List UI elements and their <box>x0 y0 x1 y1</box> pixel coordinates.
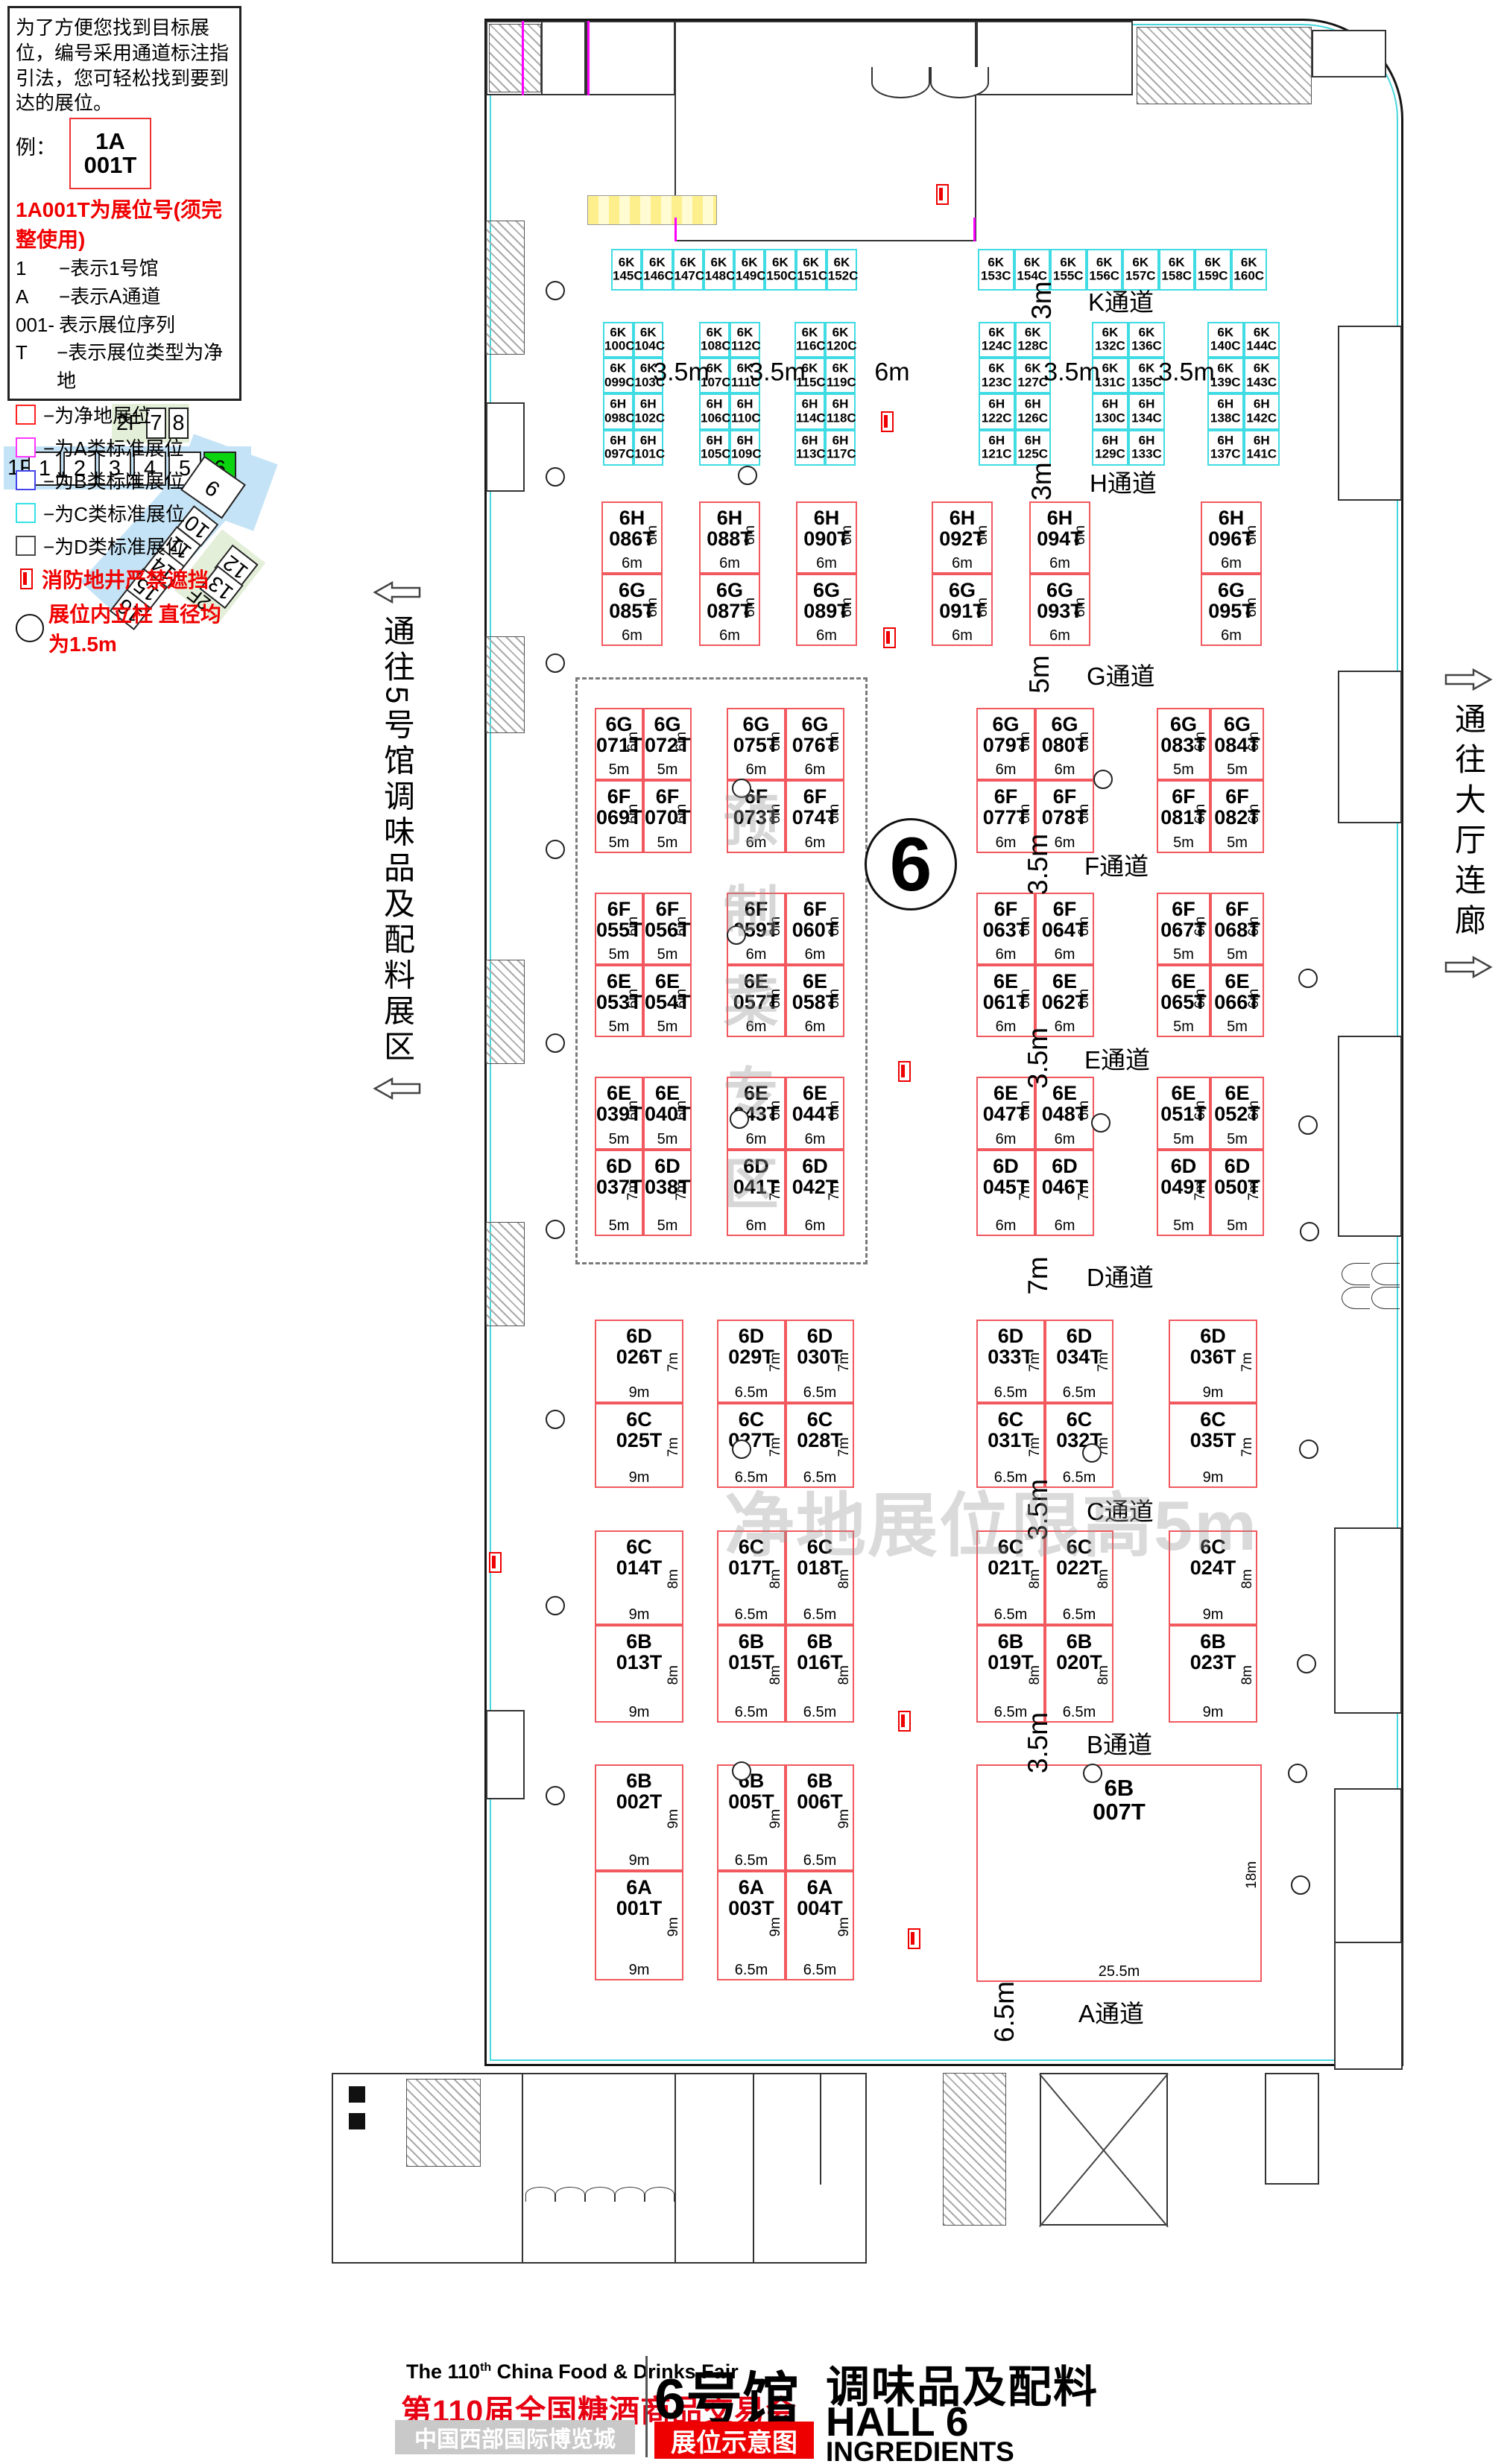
booth-6D033T: 6D033T6.5m7m <box>976 1320 1045 1403</box>
structure-wall <box>1338 326 1402 501</box>
booth-6G080T: 6G080T6m6m <box>1035 708 1094 780</box>
legend-rule: 1−表示1号馆 <box>16 255 233 283</box>
booth-code: 6K147C <box>674 256 702 284</box>
booth-width-label: 6m <box>603 555 661 572</box>
booth-width-label: 6m <box>787 1131 843 1148</box>
booth-width-label: 6.5m <box>718 1962 784 1979</box>
booth-6F070T: 6F070T5m6m <box>643 780 692 853</box>
booth-width-label: 6m <box>1037 1131 1093 1148</box>
arrow-shape <box>1446 957 1491 977</box>
booth-width-label: 6m <box>978 1217 1034 1235</box>
booth-width-label: 6m <box>1202 555 1260 572</box>
booth-width-label: 6m <box>978 946 1034 963</box>
booth-6F064T: 6F064T6m6m <box>1035 893 1094 965</box>
venue-bar: 中国西部国际博览城 <box>395 2420 635 2454</box>
booth-height-label: 7m <box>1027 1352 1043 1372</box>
booth-code: 6K136C <box>1130 326 1163 354</box>
decor: 118C <box>827 411 854 425</box>
decor: 6D <box>1170 1326 1256 1347</box>
booth-width-label: 6.5m <box>1046 1384 1112 1402</box>
decor: 151C <box>797 270 825 283</box>
booth-6G075T: 6G075T6m6m <box>727 708 786 780</box>
booth-6F074T: 6F074T6m6m <box>786 780 844 853</box>
booth-height-label: 7m <box>827 1181 843 1200</box>
booth-6G076T: 6G076T6m6m <box>786 708 844 780</box>
booth-width-label: 6m <box>787 1217 843 1235</box>
structure-arcup <box>525 2187 555 2202</box>
pillar <box>738 466 757 485</box>
structure-hatch <box>1137 27 1312 104</box>
booth-6A004T: 6A004T6.5m9m <box>786 1871 854 1980</box>
structure-wall <box>1334 1788 1402 1948</box>
booth-code: 6K116C <box>796 326 824 354</box>
legend-intro: 为了方便您找到目标展位，编号采用通道标注指引法，您可轻松找到要到达的展位。 <box>16 16 233 116</box>
booth-code: 6A001T <box>596 1878 682 1919</box>
booth-height-label: 7m <box>1239 1352 1256 1372</box>
decor: 158C <box>1160 270 1194 283</box>
booth-6H130C: 6H130C <box>1092 393 1128 429</box>
booth-code: 6H109C <box>731 434 759 461</box>
booth-height-label: 8m <box>1096 1665 1112 1685</box>
booth-type-swatch <box>16 470 36 490</box>
booth-6H110C: 6H110C <box>730 393 760 429</box>
decor: 007T <box>978 1800 1260 1824</box>
booth-code: 6H122C <box>980 398 1014 425</box>
decor: 6C <box>718 1410 784 1431</box>
booth-height-label: 7m <box>1017 1181 1034 1200</box>
aisle-width-label: 3m <box>1026 462 1058 500</box>
booth-width-label: 9m <box>596 1704 682 1721</box>
booth-code: 6K108C <box>701 326 728 354</box>
booth-6H126C: 6H126C <box>1015 393 1052 429</box>
booth-6H086T: 6H086T6m6m <box>601 501 663 574</box>
booth-width-label: 5m <box>596 1131 642 1148</box>
decor: 156C <box>1088 270 1122 283</box>
booth-code: 6H126C <box>1017 398 1050 425</box>
booth-6C025T: 6C025T9m7m <box>595 1403 683 1488</box>
decor: 6B <box>596 1771 682 1792</box>
booth-height-label: 7m <box>666 1437 682 1457</box>
decor: 6K <box>1245 326 1279 340</box>
legend-type: −为D类标准展位 <box>16 532 233 560</box>
fair-title-en-sup: th <box>480 2361 491 2374</box>
legend-rules: 1−表示1号馆A−表示A通道001-表示展位序列T−表示展位类型为净地 <box>16 255 233 395</box>
decor: 160C <box>1233 270 1266 283</box>
booth-6D050T: 6D050T5m7m <box>1210 1150 1264 1236</box>
corridor-to-hall5: 通往5号馆调味品及配料展区 <box>364 580 431 1101</box>
decor: 6H <box>701 398 728 411</box>
booth-code: 6K099C <box>604 362 632 390</box>
booth-code: 6K153C <box>979 256 1013 284</box>
legend-rule: A−表示A通道 <box>16 283 233 311</box>
booth-code: 6K124C <box>980 326 1014 354</box>
booth-width-label: 6.5m <box>1046 1606 1112 1624</box>
decor: 6K <box>1209 326 1242 340</box>
booth-height-label: 6m <box>674 804 690 823</box>
booth-height-label: 6m <box>827 1100 843 1120</box>
booth-code: 6B002T <box>596 1771 682 1812</box>
decor: 6H <box>796 434 824 447</box>
booth-6G079T: 6G079T6m6m <box>976 708 1035 780</box>
decor: 098C <box>604 411 632 425</box>
booth-6F060T: 6F060T6m6m <box>786 893 844 965</box>
decor: 6H <box>1130 434 1163 447</box>
decor: 6K <box>1124 256 1157 270</box>
booth-6D045T: 6D045T6m7m <box>976 1150 1035 1236</box>
booth-height-label: 6m <box>1192 1100 1209 1120</box>
decor: 126C <box>1017 411 1050 425</box>
booth-width-label: 6m <box>978 1131 1034 1148</box>
decor: 6D <box>645 1156 690 1177</box>
structure-mag <box>587 21 590 95</box>
decor: 114C <box>796 411 824 425</box>
decor: 6D <box>1212 1156 1263 1177</box>
structure-arcup <box>585 2187 615 2202</box>
legend-rule: 001-表示展位序列 <box>16 311 233 340</box>
legend-headline: 1A001T为展位号(须完整使用) <box>16 194 233 253</box>
structure-hatch <box>486 1222 525 1326</box>
decor: 6H <box>1017 398 1050 411</box>
booth-code: 6A004T <box>787 1878 853 1919</box>
booth-height-label: 6m <box>674 916 690 936</box>
structure-vl <box>674 2073 676 2264</box>
booth-6K112C: 6K112C <box>730 322 760 358</box>
booth-code: 6K154C <box>1016 256 1049 284</box>
fire-hydrant-icon <box>936 184 949 205</box>
example-booth-box: 1A 001T <box>69 118 151 189</box>
aisle-width-label: 3.5m <box>1023 1027 1054 1089</box>
booth-height-label: 8m <box>1239 1569 1256 1589</box>
corridor-to-lobby: 通往大厅连廊 <box>1435 667 1502 980</box>
booth-width-label: 6m <box>933 555 991 572</box>
booth-6H098C: 6H098C <box>603 393 634 429</box>
decor: 6H <box>1245 398 1279 411</box>
booth-width-label: 6m <box>787 946 843 963</box>
booth-6K116C: 6K116C <box>794 322 825 358</box>
rule-key: A <box>16 283 59 311</box>
booth-width-label: 5m <box>1158 834 1209 852</box>
booth-6E054T: 6E054T5m6m <box>643 965 692 1037</box>
booth-6G083T: 6G083T5m6m <box>1157 708 1210 780</box>
pillar-icon <box>16 614 44 642</box>
decor: 137C <box>1209 448 1242 461</box>
booth-height-label: 6m <box>674 989 690 1008</box>
booth-code: 6H142C <box>1245 398 1279 425</box>
booth-height-label: 6m <box>1017 732 1034 751</box>
booth-height-label: 9m <box>836 1809 853 1828</box>
booth-width-label: 6m <box>1037 1217 1093 1235</box>
fire-note: 消防地井严禁遮挡 <box>42 564 209 594</box>
booth-width-label: 9m <box>596 1962 682 1979</box>
decor: 6C <box>596 1410 682 1431</box>
decor: 6K <box>1233 256 1266 270</box>
booth-height-label: 6m <box>1017 804 1034 823</box>
aisle-width-label: 7m <box>1023 1256 1054 1294</box>
decor: 143C <box>1245 376 1279 389</box>
booth-width-label: 6m <box>797 627 856 644</box>
example-booth-line2: 001T <box>84 153 137 178</box>
pillar <box>546 653 565 673</box>
decor: 6D <box>787 1156 843 1177</box>
aisle-name: B通道 <box>1087 1725 1152 1761</box>
booth-6H090T: 6H090T6m6m <box>796 501 857 574</box>
booth-height-label: 6m <box>1246 989 1263 1008</box>
booth-height-label: 7m <box>1076 1181 1093 1200</box>
booth-height-label: 6m <box>1072 598 1089 617</box>
booth-6F055T: 6F055T5m6m <box>595 893 643 965</box>
decor: 001T <box>596 1898 682 1919</box>
decor: 097C <box>604 448 632 461</box>
structure-hatch <box>943 2073 1006 2226</box>
aisle-width-label: 3m <box>1026 281 1058 319</box>
booth-6B023T: 6B023T9m8m <box>1169 1625 1257 1723</box>
decor: 6A <box>596 1878 682 1898</box>
booth-height-label: 6m <box>1192 804 1209 823</box>
aisle-name: F通道 <box>1084 846 1149 882</box>
arrow-right-icon <box>1444 667 1493 692</box>
booth-height-label: 6m <box>1017 1100 1034 1120</box>
booth-6E058T: 6E058T6m6m <box>786 965 844 1037</box>
booth-height-label: 9m <box>836 1917 853 1936</box>
booth-6H114C: 6H114C <box>794 393 825 429</box>
booth-code: 6K152C <box>828 256 856 284</box>
booth-6F082T: 6F082T5m6m <box>1210 780 1264 853</box>
booth-height-label: 6m <box>1246 916 1263 936</box>
booth-width-label: 6m <box>978 761 1034 779</box>
pillar-note-row: 展位内立柱 直径均为1.5m <box>16 598 233 658</box>
booth-6F069T: 6F069T5m6m <box>595 780 643 853</box>
booth-height-label: 7m <box>836 1437 853 1457</box>
booth-6K148C: 6K148C <box>704 249 734 291</box>
decor: 150C <box>766 270 794 283</box>
booth-code: 6H114C <box>796 398 824 425</box>
booth-6K149C: 6K149C <box>734 249 765 291</box>
pillar <box>546 1220 565 1239</box>
decor: 6K <box>701 326 728 340</box>
plan-badge: 展位示意图 <box>654 2422 814 2459</box>
prefab-zone-watermark: 预制菜专区 <box>707 791 786 1246</box>
structure-arcleft <box>1371 1287 1400 1309</box>
booth-width-label: 6.5m <box>718 1852 784 1869</box>
booth-6K153C: 6K153C <box>978 249 1014 291</box>
booth-height-label: 6m <box>1076 989 1093 1008</box>
aisle-gap-label: 6m <box>874 358 909 387</box>
decor: 6B <box>978 1776 1260 1800</box>
booth-height-label: 8m <box>1096 1569 1112 1589</box>
decor: 117C <box>827 448 854 461</box>
booth-height-label: 6m <box>625 732 642 751</box>
booth-6K143C: 6K143C <box>1244 358 1280 393</box>
booth-code: 6H134C <box>1130 398 1163 425</box>
decor: 149C <box>736 270 763 283</box>
booth-6K119C: 6K119C <box>825 358 856 393</box>
decor: 6K <box>1245 362 1279 376</box>
decor: 6K <box>1093 326 1127 340</box>
booth-height-label: 9m <box>768 1809 784 1828</box>
booth-6K136C: 6K136C <box>1128 322 1165 358</box>
booth-height-label: 6m <box>625 804 642 823</box>
structure-hatch <box>489 24 541 92</box>
booth-width-label: 5m <box>645 1217 690 1235</box>
pillar <box>1298 1115 1318 1135</box>
decor: 6H <box>796 398 824 411</box>
fire-hydrant-icon <box>898 1061 911 1082</box>
booth-6K132C: 6K132C <box>1092 322 1128 358</box>
decor: 110C <box>731 411 759 425</box>
booth-code: 6K160C <box>1233 256 1266 284</box>
booth-6E061T: 6E061T6m6m <box>976 965 1035 1037</box>
aisle-width-label: 3.5m <box>1023 834 1054 895</box>
booth-6H142C: 6H142C <box>1244 393 1280 429</box>
decor: 122C <box>980 411 1014 425</box>
booth-height-label: 6m <box>827 989 843 1008</box>
booth-code: 6H098C <box>604 398 632 425</box>
legend-example: 例： 1A 001T <box>16 118 233 189</box>
structure-vl <box>522 2073 523 2264</box>
booth-width-label: 6m <box>1031 555 1089 572</box>
aisle-width-label: 3.5m <box>1023 1712 1054 1773</box>
booth-code: 6K157C <box>1124 256 1157 284</box>
booth-height-label: 8m <box>1027 1665 1043 1685</box>
booth-6H102C: 6H102C <box>634 393 664 429</box>
pillar-note: 展位内立柱 直径均为1.5m <box>48 598 233 658</box>
booth-6G095T: 6G095T6m6m <box>1201 574 1262 646</box>
booth-width-label: 5m <box>1158 1217 1209 1235</box>
booth-6F081T: 6F081T5m6m <box>1157 780 1210 853</box>
booth-6G089T: 6G089T6m6m <box>796 574 857 646</box>
decor: 6B <box>1170 1632 1256 1653</box>
decor: 6C <box>787 1410 853 1431</box>
booth-height-label: 7m <box>1096 1352 1112 1372</box>
decor: 6H <box>1093 434 1127 447</box>
booth-width-label: 6m <box>787 834 843 852</box>
booth-6H121C: 6H121C <box>979 430 1015 466</box>
decor: 6B <box>718 1632 784 1653</box>
booth-height-label: 8m <box>768 1665 784 1685</box>
pillar <box>546 1596 565 1615</box>
decor: 125C <box>1017 448 1050 461</box>
booth-6E065T: 6E065T5m6m <box>1157 965 1210 1037</box>
booth-width-label: 5m <box>596 946 642 963</box>
booth-6K147C: 6K147C <box>673 249 704 291</box>
booth-height-label: 6m <box>1076 916 1093 936</box>
booth-code: 6K104C <box>635 326 663 354</box>
legend-rule: T−表示展位类型为净地 <box>16 339 233 395</box>
decor: 6K <box>1196 256 1230 270</box>
booth-code: 6H125C <box>1017 434 1050 461</box>
booth-height-label: 6m <box>827 732 843 751</box>
fair-title-en-pre: The 110 <box>406 2360 480 2383</box>
booth-6H109C: 6H109C <box>730 430 760 466</box>
decor: 6K <box>604 362 632 376</box>
structure-hatch <box>486 221 525 355</box>
booth-height-label: 6m <box>1076 732 1093 751</box>
decor: 105C <box>701 448 728 461</box>
decor: 128C <box>1017 340 1050 353</box>
booth-width-label: 6m <box>701 555 759 572</box>
decor: 147C <box>674 270 702 283</box>
decor: 6H <box>827 434 854 447</box>
booth-width-label: 5m <box>596 1217 642 1235</box>
decor: 102C <box>635 411 663 425</box>
booth-6G093T: 6G093T6m6m <box>1029 574 1090 646</box>
decor: 6D <box>596 1156 642 1177</box>
decor: 6H <box>731 434 759 447</box>
booth-width-label: 5m <box>596 761 642 779</box>
decor: 099C <box>604 376 632 389</box>
pillar <box>1083 1764 1102 1783</box>
booth-6H096T: 6H096T6m6m <box>1201 501 1262 574</box>
booth-code: 6K148C <box>705 256 733 284</box>
aisle-name: G通道 <box>1087 656 1155 692</box>
booth-code: 6H117C <box>827 434 854 461</box>
example-booth-line1: 1A <box>95 130 125 154</box>
decor: 119C <box>827 376 854 389</box>
booth-height-label: 6m <box>645 525 661 545</box>
booth-6K140C: 6K140C <box>1207 322 1244 358</box>
booth-width-label: 25.5m <box>978 1963 1260 1980</box>
booth-width-label: 6m <box>1202 627 1260 644</box>
booth-height-label: 6m <box>742 525 759 545</box>
decor: 6D <box>978 1326 1043 1347</box>
booth-width-label: 6.5m <box>787 1962 853 1979</box>
booth-width-label: 6.5m <box>787 1852 853 1869</box>
pillar <box>546 1410 565 1429</box>
decor: 159C <box>1196 270 1230 283</box>
booth-height-label: 8m <box>666 1569 682 1589</box>
decor: 153C <box>979 270 1013 283</box>
arrow-left-icon <box>373 1076 422 1101</box>
decor: 6K <box>635 326 663 340</box>
decor: 141C <box>1245 448 1279 461</box>
decor: 6D <box>1037 1156 1093 1177</box>
booth-width-label: 5m <box>1158 1019 1209 1036</box>
booth-code: 6K132C <box>1093 326 1127 354</box>
booth-6K145C: 6K145C <box>611 249 642 291</box>
booth-6D046T: 6D046T6m7m <box>1035 1150 1094 1236</box>
booth-6K104C: 6K104C <box>634 322 664 358</box>
booth-6K123C: 6K123C <box>979 358 1015 393</box>
booth-6K160C: 6K160C <box>1231 249 1268 291</box>
booth-height-label: 8m <box>666 1665 682 1685</box>
booth-type-swatch <box>16 503 36 523</box>
structure-mag <box>973 218 976 241</box>
fire-hydrant-icon <box>20 569 33 589</box>
decor: 6H <box>1093 398 1127 411</box>
booth-width-label: 5m <box>1212 1217 1263 1235</box>
booth-width-label: 6m <box>787 1019 843 1036</box>
decor: 123C <box>980 376 1014 389</box>
booth-height-label: 6m <box>1192 989 1209 1008</box>
booth-code: 6K155C <box>1052 256 1085 284</box>
decor: 6K <box>1088 256 1122 270</box>
booth-6E039T: 6E039T5m6m <box>595 1077 643 1150</box>
booth-6D029T: 6D029T6.5m7m <box>717 1320 786 1403</box>
booth-width-label: 6m <box>701 627 759 644</box>
decor: 6K <box>797 256 825 270</box>
decor: 6A <box>718 1878 784 1898</box>
booth-code: 6K112C <box>731 326 759 354</box>
booth-height-label: 6m <box>674 1100 690 1120</box>
structure-wall <box>1338 1036 1402 1237</box>
decor: 6D <box>787 1326 853 1347</box>
booth-6E052T: 6E052T5m6m <box>1210 1077 1264 1150</box>
booth-height-label: 8m <box>1027 1569 1043 1589</box>
booth-6H137C: 6H137C <box>1207 430 1244 466</box>
decor: 6B <box>787 1632 853 1653</box>
booth-6F067T: 6F067T5m6m <box>1157 893 1210 965</box>
booth-6G085T: 6G085T6m6m <box>601 574 663 646</box>
